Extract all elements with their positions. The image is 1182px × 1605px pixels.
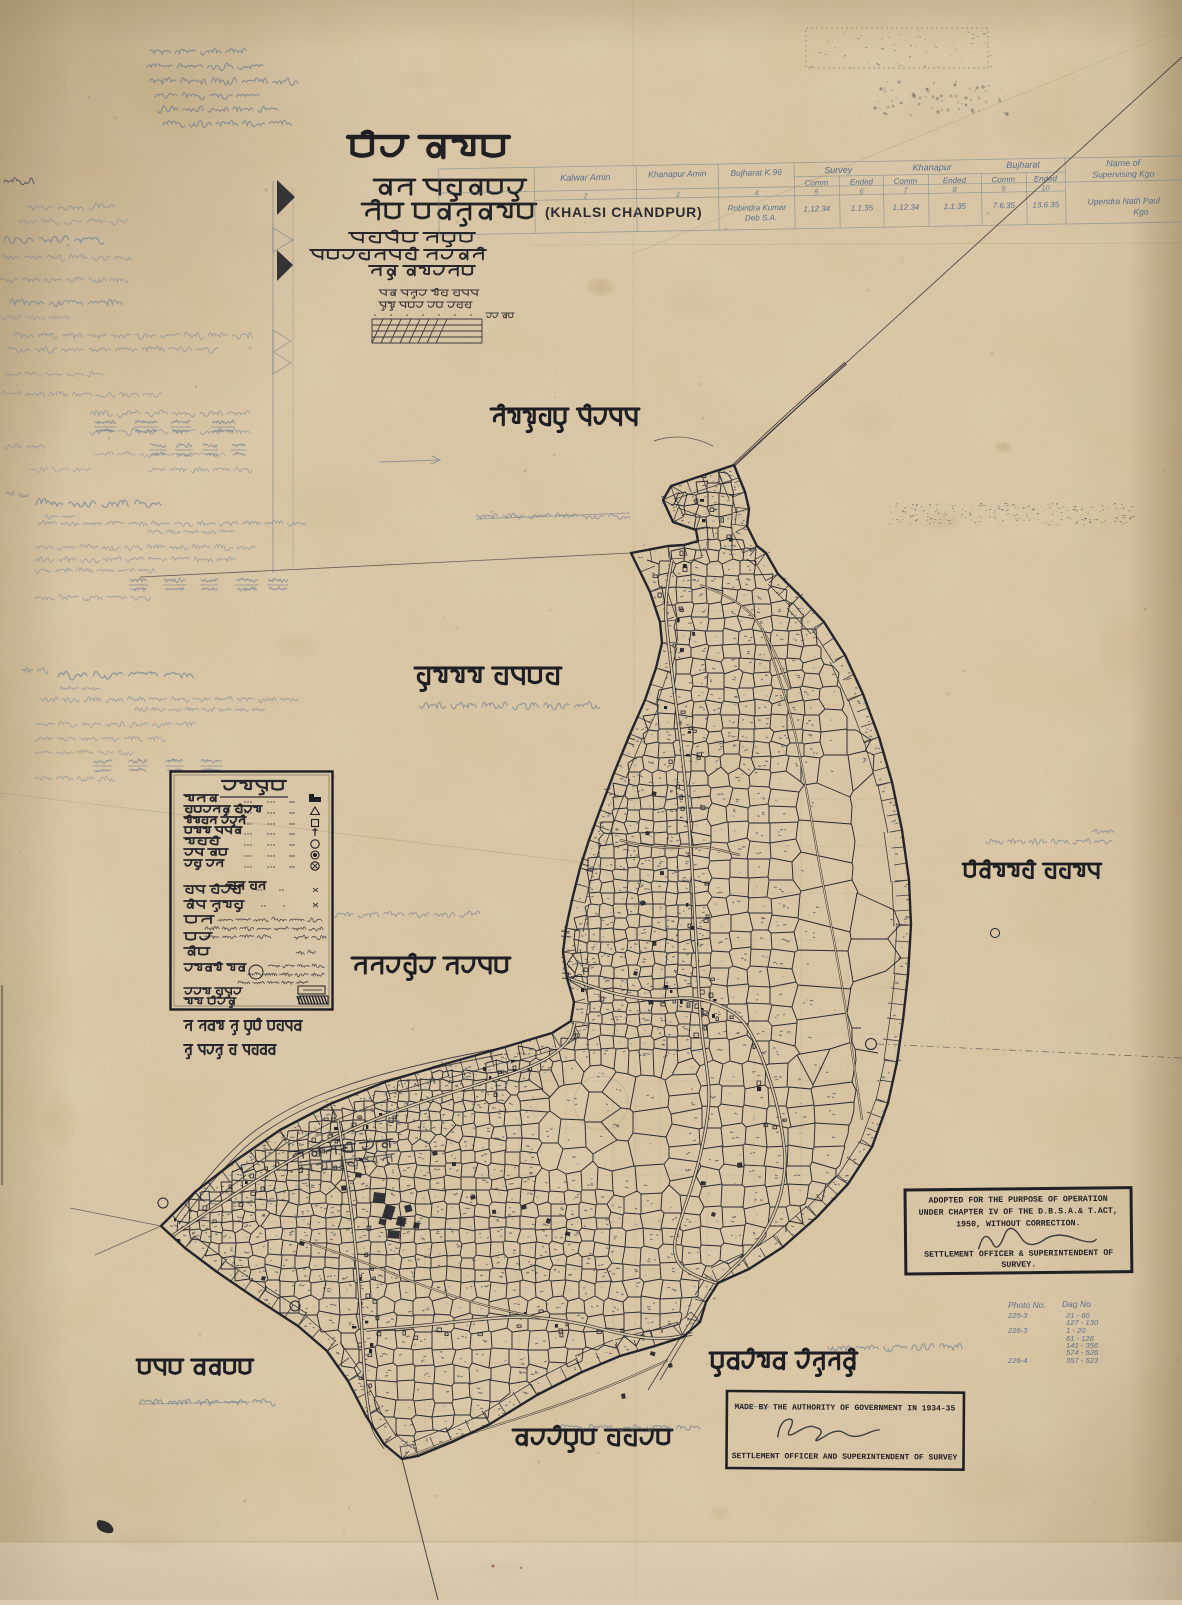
svg-text:Kgo: Kgo bbox=[1133, 207, 1149, 217]
svg-text:Comm: Comm bbox=[805, 178, 829, 187]
svg-text:Bujharat K.96: Bujharat K.96 bbox=[730, 167, 782, 178]
svg-text:Ended: Ended bbox=[943, 176, 967, 185]
svg-text:1950, WITHOUT CORRECTION.: 1950, WITHOUT CORRECTION. bbox=[956, 1219, 1081, 1229]
svg-text:MADE BY THE AUTHORITY OF GOVER: MADE BY THE AUTHORITY OF GOVERNMENT IN 1… bbox=[734, 1403, 955, 1414]
svg-text:225-3: 225-3 bbox=[1007, 1311, 1028, 1320]
svg-text:357 - 523: 357 - 523 bbox=[1066, 1356, 1099, 1365]
svg-text:Name of: Name of bbox=[1106, 158, 1142, 169]
svg-text:13.6.35: 13.6.35 bbox=[1032, 200, 1059, 209]
svg-text:Survey: Survey bbox=[824, 165, 853, 175]
svg-text:Comm: Comm bbox=[992, 175, 1016, 184]
svg-text:Bujharat: Bujharat bbox=[1006, 159, 1040, 170]
svg-text:10: 10 bbox=[1041, 183, 1050, 192]
svg-text:SURVEY.: SURVEY. bbox=[1001, 1261, 1036, 1270]
svg-text:7.6.35: 7.6.35 bbox=[993, 201, 1016, 210]
svg-text:ADOPTED FOR THE PURPOSE OF OPE: ADOPTED FOR THE PURPOSE OF OPERATION bbox=[928, 1195, 1107, 1206]
svg-text:Robindra Kumar: Robindra Kumar bbox=[728, 203, 787, 213]
svg-text:1.1.35: 1.1.35 bbox=[851, 203, 874, 212]
svg-text:Deb S.A.: Deb S.A. bbox=[745, 213, 777, 223]
svg-text:1.12.34: 1.12.34 bbox=[892, 203, 919, 212]
svg-text:Upendra Nath Paul: Upendra Nath Paul bbox=[1088, 195, 1162, 206]
svg-text:Khanapur Amin: Khanapur Amin bbox=[648, 168, 707, 179]
svg-text:226-3: 226-3 bbox=[1007, 1326, 1028, 1335]
svg-text:SETTLEMENT OFFICER AND SUPERIN: SETTLEMENT OFFICER AND SUPERINTENDENT OF… bbox=[732, 1452, 958, 1463]
svg-text:(KHALSI CHANDPUR): (KHALSI CHANDPUR) bbox=[545, 204, 702, 220]
svg-text:226-4: 226-4 bbox=[1007, 1356, 1027, 1365]
svg-text:4: 4 bbox=[754, 188, 758, 197]
svg-text:Comm: Comm bbox=[894, 177, 918, 186]
svg-text:Supervising Kgo: Supervising Kgo bbox=[1092, 168, 1154, 179]
svg-text:Ended: Ended bbox=[850, 177, 874, 186]
svg-text:Photo No.: Photo No. bbox=[1008, 1300, 1046, 1310]
svg-text:Khanapur: Khanapur bbox=[913, 162, 953, 173]
svg-text:Dag No: Dag No bbox=[1062, 1299, 1091, 1309]
svg-text:Ended: Ended bbox=[1034, 174, 1058, 183]
svg-text:1.12.34: 1.12.34 bbox=[803, 204, 830, 213]
svg-text:1.1.35: 1.1.35 bbox=[944, 202, 967, 211]
svg-text:Kalwar Amin: Kalwar Amin bbox=[560, 172, 610, 183]
